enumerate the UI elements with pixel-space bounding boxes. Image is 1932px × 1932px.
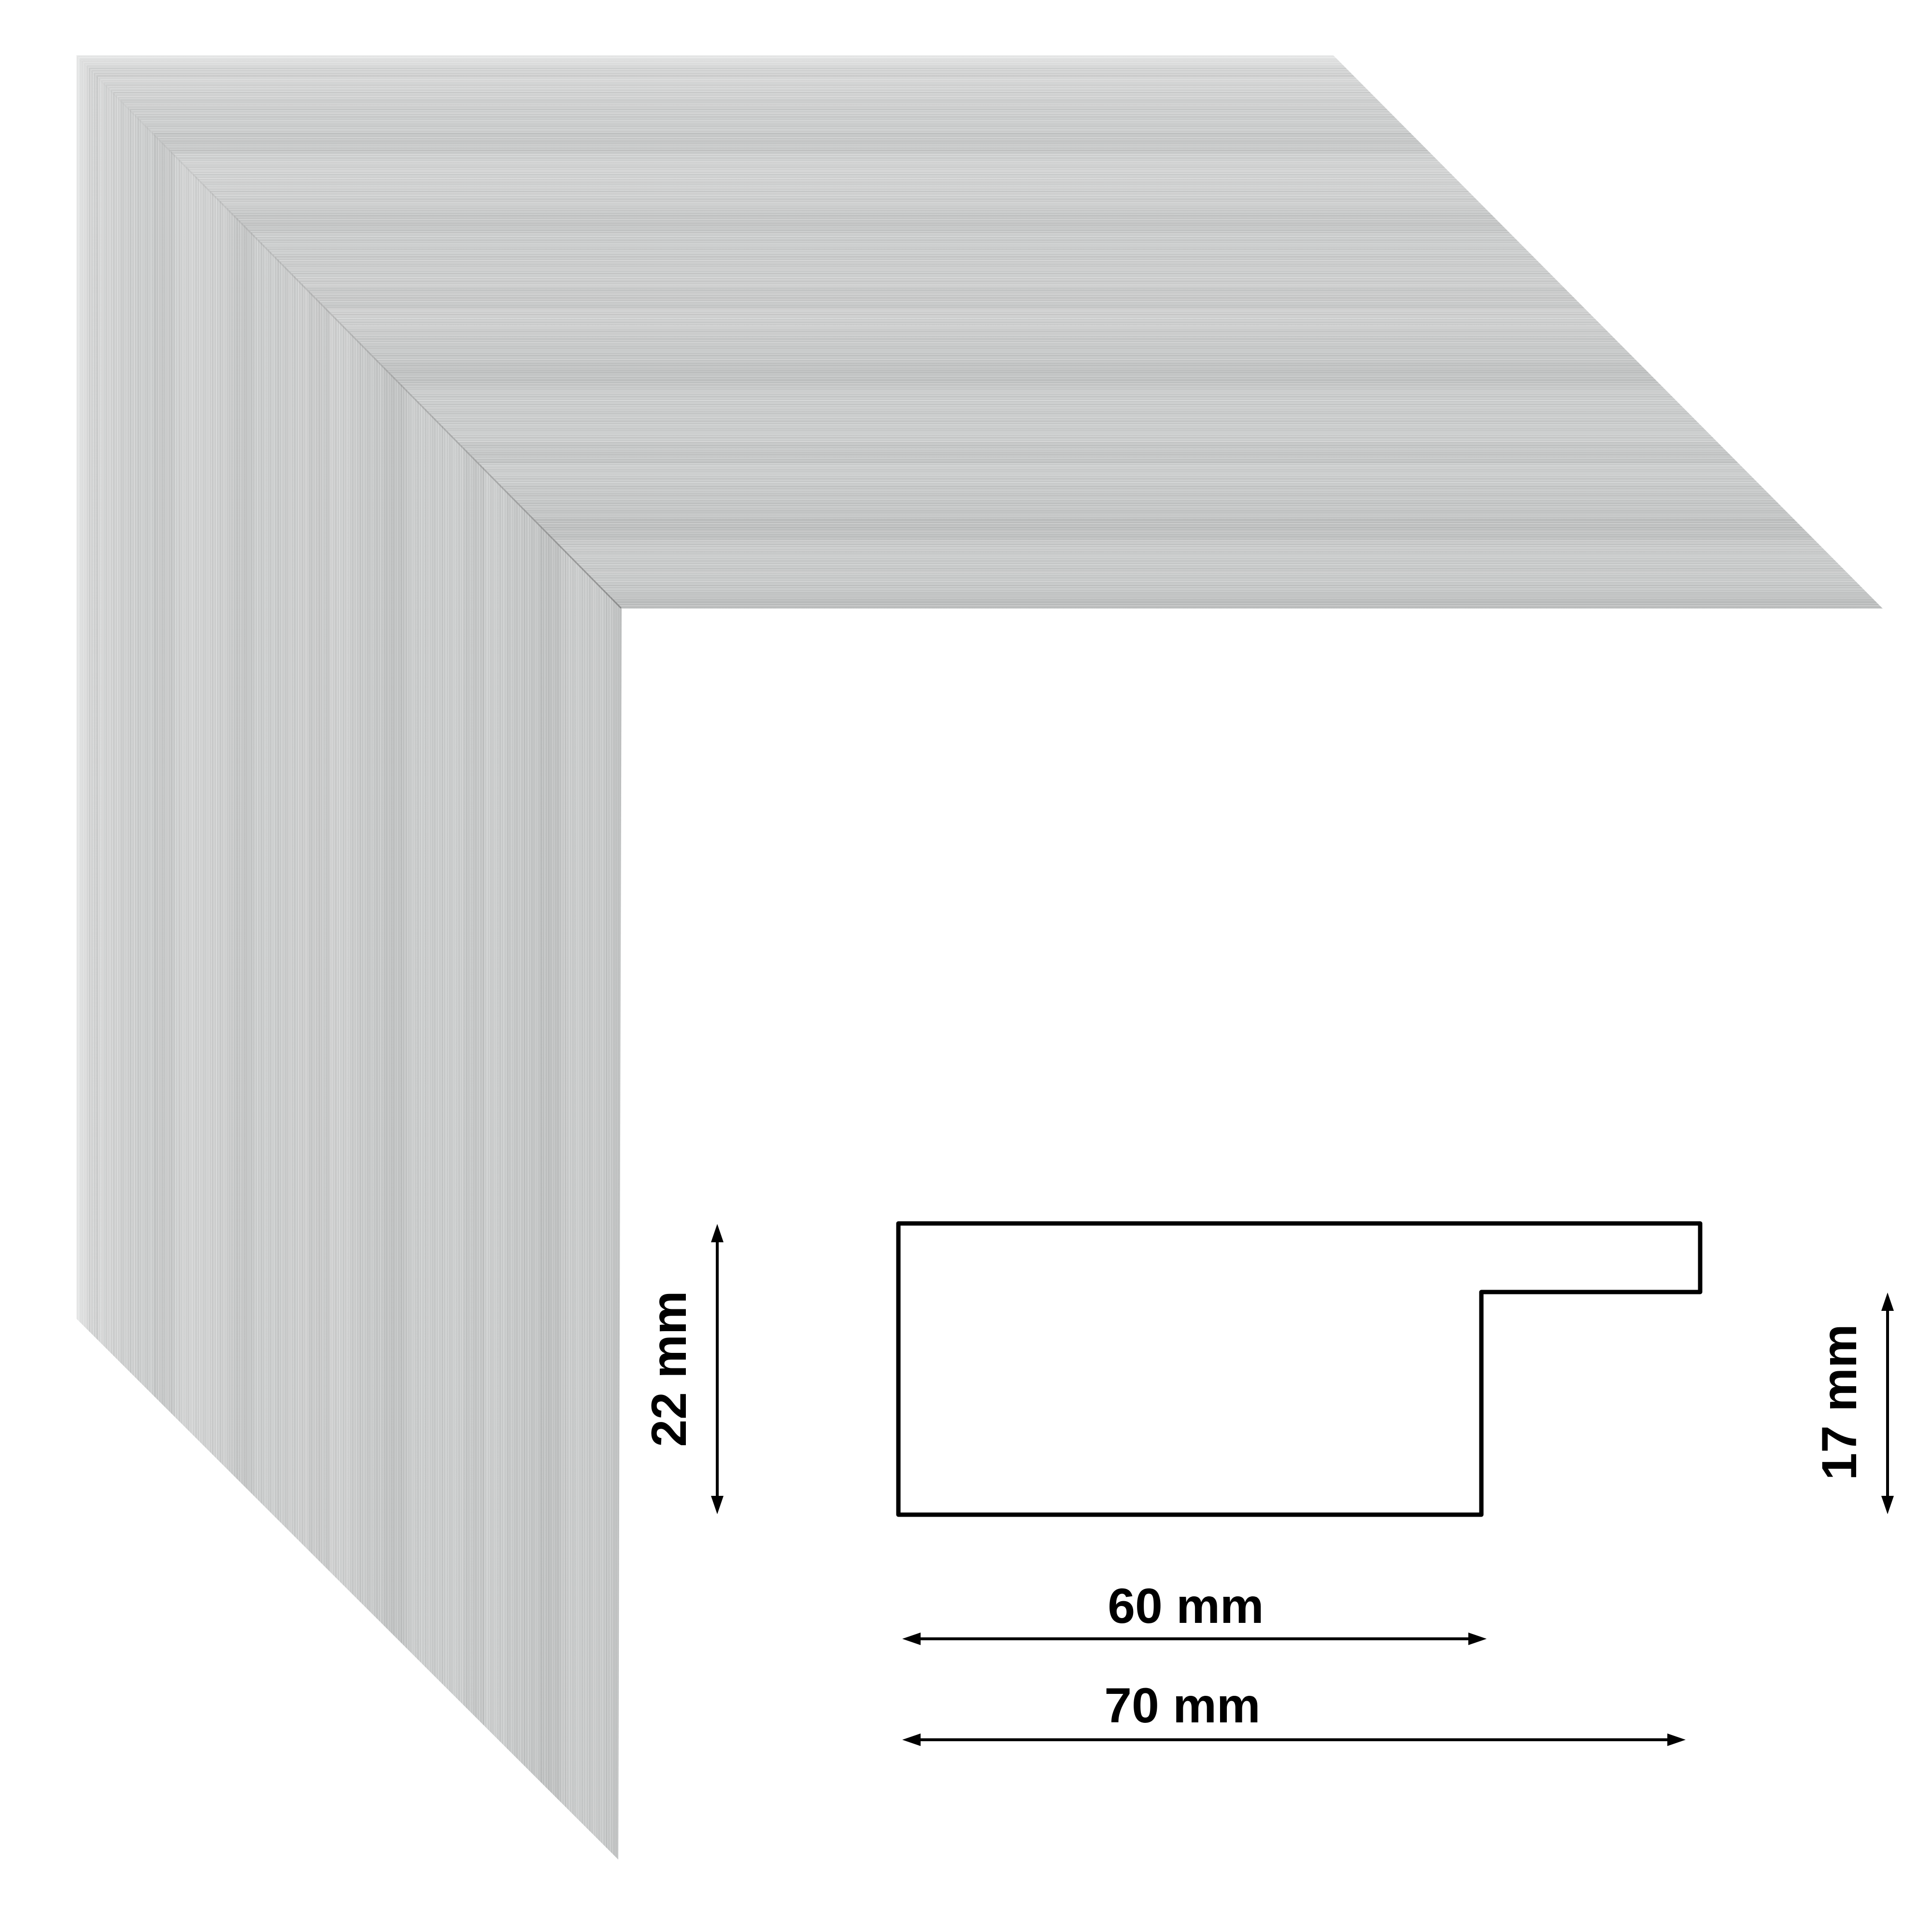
dim-overall-width-arrow: 70 mm bbox=[902, 1678, 1686, 1746]
product-image: 22 mm 17 mm 60 mm 70 mm bbox=[0, 0, 1932, 1932]
dim-rabbet-height-arrow: 17 mm bbox=[1812, 1293, 1894, 1514]
arrowhead-left-icon bbox=[902, 1633, 921, 1645]
profile-cross-section-diagram: 22 mm 17 mm 60 mm 70 mm bbox=[0, 0, 1932, 1932]
dim-height-label: 22 mm bbox=[641, 1291, 696, 1447]
arrowhead-left-icon bbox=[902, 1733, 921, 1746]
dim-height-arrow: 22 mm bbox=[641, 1224, 724, 1514]
dim-overall-width-label: 70 mm bbox=[1104, 1678, 1260, 1733]
arrowhead-up-icon bbox=[711, 1224, 724, 1242]
dim-face-width-arrow: 60 mm bbox=[902, 1578, 1487, 1645]
dim-face-width-label: 60 mm bbox=[1108, 1578, 1264, 1634]
profile-outline bbox=[898, 1223, 1700, 1515]
arrowhead-right-icon bbox=[1667, 1733, 1686, 1746]
arrowhead-up-icon bbox=[1881, 1293, 1894, 1311]
arrowhead-down-icon bbox=[711, 1496, 724, 1514]
arrowhead-down-icon bbox=[1881, 1496, 1894, 1514]
dim-rabbet-height-label: 17 mm bbox=[1812, 1324, 1867, 1480]
arrowhead-right-icon bbox=[1468, 1633, 1487, 1645]
